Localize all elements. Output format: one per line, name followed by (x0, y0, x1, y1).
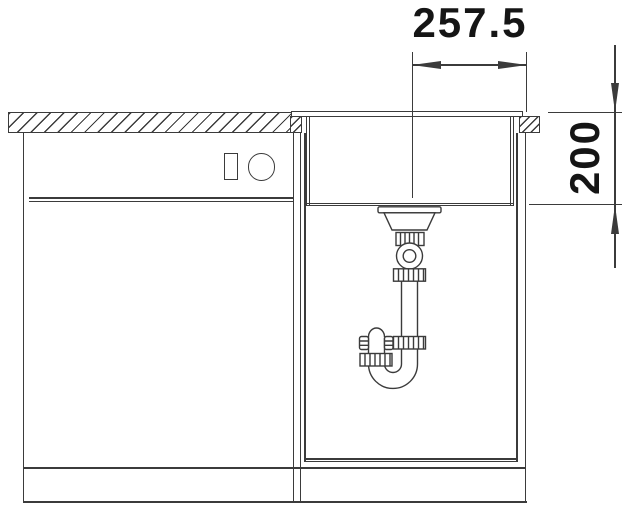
left-cabinet-left-wall (23, 133, 25, 503)
dim-h-arrow-left (412, 61, 441, 69)
control-rectangle (224, 153, 239, 181)
outlet-cap-dome (369, 328, 385, 337)
rim-section-left (290, 116, 303, 133)
basket-strainer (378, 207, 441, 246)
dimension-label-vertical: 200 (564, 113, 606, 201)
trap-inlet-nut (394, 337, 426, 350)
outlet-side-nut-left (360, 337, 369, 350)
technical-drawing-canvas: 257.5 200 (0, 0, 625, 509)
drawer-front-divider-lower (29, 201, 293, 203)
worktop-cross-section (8, 112, 295, 133)
right-cabinet-right-outer-wall (525, 133, 527, 503)
drain-siphon-assembly (350, 198, 450, 435)
dim-v-extension-bottom (529, 204, 622, 205)
drawer-front-divider-upper (29, 197, 293, 199)
dim-h-extension-drain-center (412, 52, 413, 198)
right-cabinet-left-outer-wall (300, 133, 302, 503)
dim-h-arrow-right (498, 61, 527, 69)
swivel-ball-joint (397, 243, 423, 269)
plinth-top-line (23, 467, 527, 469)
dim-v-arrow-up (611, 205, 619, 234)
sink-rim (291, 111, 523, 118)
cabinet-inner-floor-upper (304, 458, 517, 459)
floor-line (23, 501, 527, 503)
dim-h-extension-right-edge (526, 52, 527, 112)
right-cabinet-right-inner-wall (516, 133, 517, 462)
rim-section-right (519, 116, 541, 133)
cabinet-inner-floor-lower (304, 461, 517, 462)
trap-outlet-nut (360, 354, 392, 367)
bowl-left-wall-inner (309, 117, 310, 206)
siphon-p-trap (360, 281, 426, 388)
dimension-label-vertical-text: 200 (564, 119, 606, 195)
bowl-right-wall-outer (513, 117, 514, 206)
outlet-side-nut-right (385, 337, 394, 350)
dimension-label-horizontal: 257.5 (398, 2, 542, 44)
bowl-left-wall-outer (306, 117, 307, 206)
left-cabinet-right-wall (293, 133, 295, 503)
dim-v-line (614, 45, 615, 268)
control-circle (248, 153, 276, 181)
dim-v-arrow-down (611, 83, 619, 112)
bowl-right-wall-inner (510, 117, 511, 206)
tailpipe-union-nut (394, 269, 426, 281)
